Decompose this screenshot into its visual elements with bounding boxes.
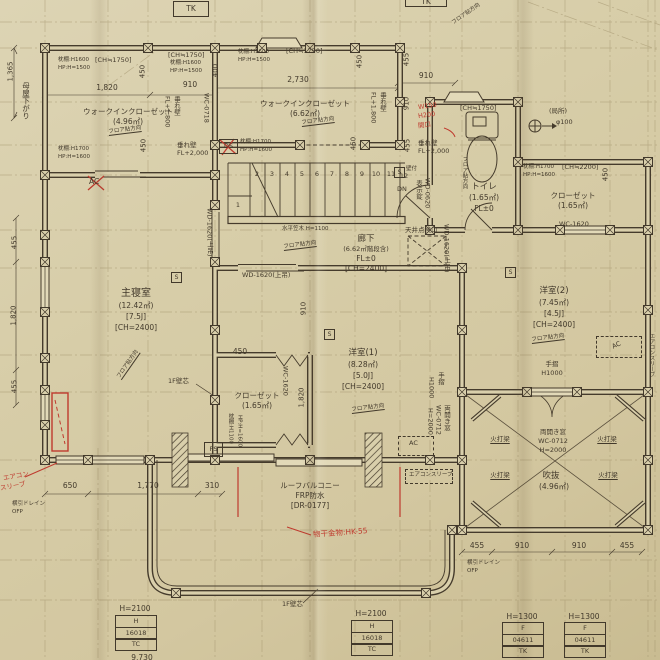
wall-core-label: 1F壁芯 [168,378,189,385]
dim-310: 310 [205,482,219,490]
hanging-wall-label: 垂れ壁 [418,140,438,147]
corner-brace-label: 火打梁 [490,472,510,479]
hanging-wall-label: 垂れ壁 [177,142,197,149]
ceiling-height-note: [CH≒1750] [95,57,132,64]
dim-450-v: 450 [357,47,364,77]
double-window-label-v1: 両開き窓 [443,405,450,431]
room-closet-center-name: クローゼット [235,392,280,400]
dim-2730: 2,730 [287,76,308,84]
drain-label: 横引ドレイン [12,502,45,508]
sliding-doors [95,171,304,271]
toilet-fixture [466,112,498,182]
room-west2-area: (7.45㎡) [539,299,569,307]
drain-ofp-label: OFP [12,510,23,516]
wall-core-label: 1F壁芯 [282,601,303,608]
shelf-note: 枕棚:H1600 [58,58,89,64]
room-corridor-ch: [CH=2400] [345,265,387,273]
room-west2-ch: [CH=2400] [533,321,575,329]
double-window-label-h2: WC-0712 [538,438,568,445]
hatched-pier-left [172,433,188,487]
shelf-note: 枕棚:H1700 [523,165,554,171]
balcony-label-2: FRP防水 [295,492,324,500]
window-label-wc0718-v: WC-0718 [203,93,210,123]
drain-ofp-label: OFP [467,569,478,575]
dim-910: 910 [515,542,529,550]
stair-tread-number: 8 [345,171,349,178]
dim-650: 650 [63,482,77,490]
dim-455-left: 455 [12,228,19,258]
balcony-label-3: [DR-0177] [291,502,329,510]
red-annotations [25,128,455,535]
hanging-wall-fl2000: FL+2,000 [177,150,208,157]
top-symbol-cell: TK [173,1,209,17]
table2-row: TC [351,643,393,656]
drain-label: 横引ドレイン [467,561,500,567]
room-toilet-fl: FL±0 [474,205,494,213]
double-window-label-v3: H=2000 [427,408,434,435]
stair-tread-number: 1 [236,202,240,209]
moya-sagari-label-v: 母屋下がり [22,82,30,120]
ceiling-height-note: [CH≒1750] [286,48,323,55]
room-corridor-name: 廊下 [357,235,374,244]
corner-brace-label: 火打梁 [490,436,510,443]
hanging-wall-v: 垂れ壁 [379,92,386,112]
ac-label: AC [89,178,99,186]
room-toilet-name: トイレ [471,183,497,192]
handrail-label: 手摺 [546,361,559,368]
shelf-note-vertical: HP:H=1600 [236,415,242,447]
dim-450-v: 450 [603,160,610,190]
door-label-wd1620-v: WD-1620(上吊) [443,224,450,272]
stair-tread-number: 7 [330,171,334,178]
corner-braces-outer [472,396,644,526]
room-closet-center-area: (1.65㎡) [242,402,272,410]
shelf-note: HP:H=1600 [240,148,272,154]
room-west1-area: (8.28㎡) [348,361,378,369]
dim-1770: 1,770 [137,482,158,490]
hanging-wall-fl1800-v: FL+1,800 [370,92,377,123]
room-west1-ch: [CH=2400] [342,383,384,391]
shelf-note: HP:H=1500 [58,66,90,72]
door-label-wd0620: WD-0620 [424,178,431,208]
room-corridor-fl: FL±0 [356,255,376,263]
local-vent-label: (局所) [549,108,567,115]
handrail-label-v: 手摺 [437,372,444,385]
dim-910-v: 910 [404,89,411,119]
shelf-note: 枕棚:H1700 [58,147,89,153]
red-note-opening: 開口 [418,121,432,129]
hanging-wall-fl1800-v: FL+1,800 [164,96,171,127]
ceiling-height-note: [CH≒2200] [562,164,599,171]
room-master-ch: [CH=2400] [115,324,157,332]
stair-tread-number: 2 [255,171,259,178]
corner-brace-label: 火打梁 [598,472,618,479]
s-marker: S [505,267,516,278]
dim-9730: 9,730 [131,654,152,660]
door-label-lock: 表示錠 [415,180,422,200]
leader-lines [14,48,318,603]
kasagi-label: 水平笠木 H=1100 [282,227,329,233]
dim-1365: 1,365 [8,57,15,87]
room-wic2-name: ウォークインクローゼット [260,100,350,108]
hatched-pier-right [365,433,382,487]
room-toilet-area: (1.65㎡) [469,194,499,202]
stair-tread-number: 11 [387,171,395,178]
dim-455: 455 [620,542,634,550]
shelf-note: 枕棚:H1600 [238,50,269,56]
dim-455-v: 455 [404,45,411,75]
window-label-wc1620: WC-1620 [559,221,589,228]
window-label-wc1620-v: WC-1620 [282,366,289,396]
room-wic1-name: ウォークインクローゼット [83,108,173,116]
room-west2-mats: [4.5J] [544,310,564,318]
shelf-note: 枕棚:H1600 [170,61,201,67]
table4-row: TK [564,645,606,658]
floor-direction-toilet-v: フロア貼方向 [461,156,467,189]
shelf-note: 枕棚:H1700 [240,140,271,146]
room-wic2-area: (6.62㎡) [290,110,320,118]
hanging-wall-fl2000: FL+2,000 [418,148,449,155]
stair-tread-number: 10 [372,171,380,178]
s-marker: S [171,272,182,283]
shelf-note: HP:H=1600 [58,155,90,161]
stair-tread-number: 5 [300,171,304,178]
ac-sleeve-dashed-box [405,469,453,484]
void-cross-lines [462,392,648,530]
s-marker: S [324,329,335,340]
dim-1820-v: 1,820 [299,383,306,413]
room-west1-mats: [5.0J] [353,372,373,380]
shelf-note-vertical: 枕棚:H1100 [227,413,233,444]
floor-plan-sheet: ウォークインクローゼット (4.96㎡) フロア貼方向 ウォークインクローゼット… [0,0,660,660]
room-master-name: 主寝室 [121,289,151,299]
room-void-name: 吹抜 [542,472,559,481]
room-corridor-area: (6.62㎡階段含) [343,246,389,253]
dim-400-v: 400 [213,56,220,86]
dim-1820-left: 1,820 [11,301,18,331]
vent-diameter-label: φ100 [556,119,573,126]
table4-header: H=1300 [568,613,599,621]
dim-455-v: 455 [405,131,412,161]
shelf-note: HP:H=1600 [523,173,555,179]
ac-sleeve-label-v: エアコンスリーブ [648,333,654,377]
balcony-label-1: ルーフバルコニー [280,482,339,490]
door-label-wd1620: WD-1620(上吊) [242,272,290,279]
stair-tread-number: 6 [315,171,319,178]
table1-header: H=2100 [119,605,150,613]
door-label-wd1620-v: WD-1620(上吊) [206,208,213,256]
ceiling-height-note: [CH≒1750] [460,105,497,112]
room-closet-right-name: クローゼット [551,192,596,200]
dim-910: 910 [572,542,586,550]
handrail-height-v: H1000 [428,377,435,398]
handrail-height: H1000 [541,370,562,377]
dim-910: 910 [183,81,197,89]
ps-pipe-box: PS [204,442,223,457]
ac-dashed-box [596,336,642,358]
dim-450: 450 [233,348,247,356]
dim-455: 455 [470,542,484,550]
room-closet-right-area: (1.65㎡) [558,202,588,210]
shelf-note: HP:H=1500 [170,69,202,75]
room-master-area: (12.42㎡) [119,302,154,310]
stair-tread-number: 4 [285,171,289,178]
ds-duct-box: DS [219,139,238,154]
table2-header: H=2100 [355,610,386,618]
room-west1-name: 洋室(1) [348,349,377,358]
double-window-label-v2: WC-0712 [435,405,442,435]
shelf-note: HP:H=1500 [238,58,270,64]
dim-910: 910 [419,72,433,80]
dim-455-left: 455 [12,372,19,402]
corner-brace-label: 火打梁 [597,436,617,443]
dim-1820: 1,820 [96,84,117,92]
table3-header: H=1300 [506,613,537,621]
double-window-label-h1: 両開き窓 [540,429,566,436]
dim-450-v: 450 [141,131,148,161]
ceiling-inspection-label: 天井点検口 [405,227,438,234]
dim-450-v: 450 [351,129,358,159]
room-west2-name: 洋室(2) [539,287,568,296]
stair-tread-number: 9 [360,171,364,178]
dim-910-v: 910 [301,294,308,324]
double-window-label-h3: H=2000 [540,447,567,454]
stair-tread-number: 3 [270,171,274,178]
room-void-area: (4.96㎡) [539,483,569,491]
stair-dn-label: DN [397,186,407,193]
ceiling-height-note: [CH≒1750] [168,52,205,59]
ceiling-hatch [408,236,446,266]
room-master-mats: [7.5J] [126,313,146,321]
dim-450-v: 450 [140,57,147,87]
exhaust-fan-symbol [529,120,557,132]
top-symbol-cell-partial: TK [405,0,447,7]
corner-braces-inner [472,396,644,526]
table3-row: TK [502,645,544,658]
ac-dashed-box [398,436,434,456]
balcony-parapet-inner-line [157,460,445,586]
table1-row: TC [115,638,157,651]
stair-tread-number: 12 [400,173,408,180]
hanging-wall-v: 垂れ壁 [173,96,180,116]
